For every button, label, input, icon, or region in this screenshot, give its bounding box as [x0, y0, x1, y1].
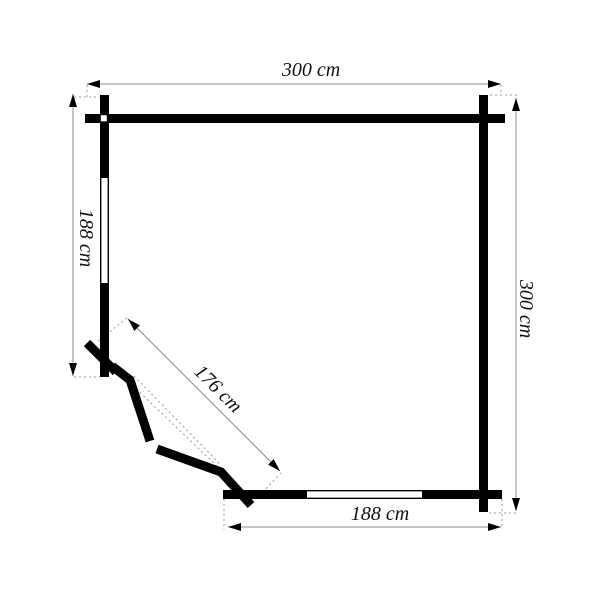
bottom-wall-right — [422, 490, 502, 499]
door-assembly — [87, 343, 251, 505]
corner-notch-top-left — [101, 115, 107, 121]
dimension-label-right-depth: 300 cm — [516, 280, 536, 338]
floor-plan: 300 cm 188 cm 300 cm 188 cm 176 cm — [0, 0, 600, 600]
floor-plan-drawing — [0, 0, 600, 600]
dimension-label-top-width: 300 cm — [282, 60, 340, 80]
window-openings — [101, 178, 422, 498]
top-wall — [85, 114, 505, 123]
right-wall — [479, 95, 488, 512]
extension-lines — [74, 85, 517, 530]
door-leaf-left — [112, 366, 150, 441]
dimension-label-bottom-front: 188 cm — [351, 504, 409, 524]
dimension-lines — [73, 84, 516, 527]
walls — [85, 95, 505, 512]
dimension-label-left-front: 188 cm — [76, 209, 96, 267]
left-wall-upper — [100, 95, 109, 178]
